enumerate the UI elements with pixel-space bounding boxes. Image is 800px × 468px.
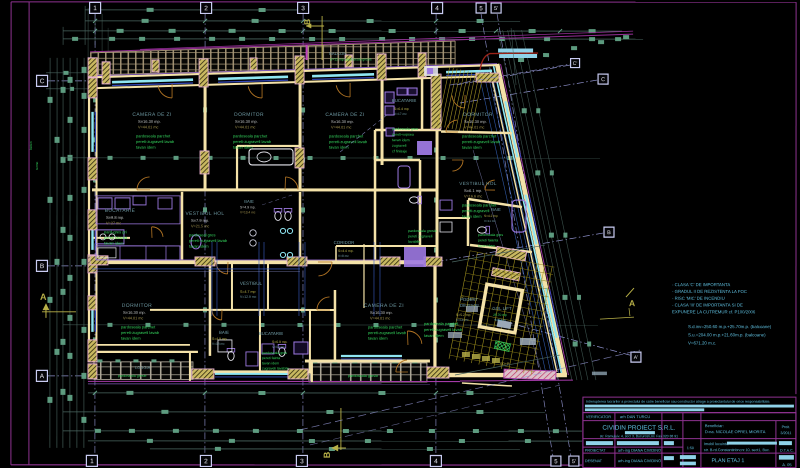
svg-text:pardoseala gresie: pardoseala gresie [348, 374, 378, 378]
svg-text:V=44.01 mc: V=44.01 mc [235, 125, 255, 129]
svg-text:lavabile: lavabile [408, 240, 420, 244]
svg-text:S=16.30 mp.: S=16.30 mp. [138, 119, 161, 124]
svg-text:pereti-zugraveli lavab: pereti-zugraveli lavab [424, 327, 463, 332]
svg-text:VESTIBUL: VESTIBUL [240, 281, 263, 286]
svg-text:DORMITOR: DORMITOR [234, 112, 264, 118]
svg-text:pereti-zugraveli lavab: pereti-zugraveli lavab [233, 139, 272, 144]
svg-text:V=44.01 mc: V=44.01 mc [123, 316, 143, 320]
svg-text:pardoseala gres: pardoseala gres [262, 351, 287, 355]
svg-text:arh-ing DIANA CIVIDINO: arh-ing DIANA CIVIDINO [618, 448, 661, 453]
svg-text:pardoseala parchet: pardoseala parchet [136, 133, 171, 138]
svg-text:S=6.2 m: S=6.2 m [494, 318, 506, 322]
svg-text:pereti-zugraveli lavab: pereti-zugraveli lavab [329, 139, 368, 144]
svg-text:tavan idem: tavan idem [368, 336, 388, 341]
svg-text:S=16.30 mp.: S=16.30 mp. [235, 119, 258, 124]
svg-text:3: 3 [301, 5, 305, 12]
svg-text:V=19 mc: V=19 mc [272, 345, 285, 349]
svg-text:tavan idem: tavan idem [462, 145, 482, 150]
svg-text:tavan idem: tavan idem [189, 244, 209, 249]
svg-text:pereti faianta: pereti faianta [104, 235, 128, 240]
svg-text:pardoseala parchet: pardoseala parchet [233, 133, 268, 138]
svg-text:V=44.01 mc: V=44.01 mc [138, 125, 158, 129]
svg-text:V=12.9 mc: V=12.9 mc [240, 295, 257, 299]
svg-text:S=16.30 mp.: S=16.30 mp. [123, 310, 146, 315]
svg-text:arh DAN TURCU: arh DAN TURCU [620, 414, 650, 419]
svg-text:str. B-rd.Constantinbrv,nr.10,: str. B-rd.Constantinbrv,nr.10, sect1, Bu… [704, 448, 770, 452]
svg-text:CORIDOR: CORIDOR [334, 240, 355, 245]
svg-text:cf finisaje: cf finisaje [392, 149, 407, 153]
svg-text:pardoseala parchet: pardoseala parchet [462, 134, 497, 139]
svg-text:BUCATARIE: BUCATARIE [105, 208, 135, 214]
svg-text:S=9.8 mp.: S=9.8 mp. [106, 215, 124, 220]
svg-text:V=44.01 mc: V=44.01 mc [370, 316, 390, 320]
svg-text:DORMITOR: DORMITOR [463, 112, 493, 118]
svg-text:S=4.7 mp: S=4.7 mp [240, 290, 255, 294]
svg-text:pardoseala parchet: pardoseala parchet [329, 133, 364, 138]
svg-text:C: C [601, 77, 605, 83]
svg-text:pereti fainta: pereti fainta [262, 356, 280, 360]
svg-text:S=6.4 mp: S=6.4 mp [394, 107, 409, 111]
svg-text:V=16.6 mc: V=16.6 mc [464, 195, 482, 199]
svg-text:EXPUNERE LA CUTREMUR cf. P100: EXPUNERE LA CUTREMUR cf. P100/2006 [672, 309, 756, 314]
svg-text:PLAN ETAJ 1: PLAN ETAJ 1 [711, 458, 744, 464]
svg-text:pardoseala parchet: pardoseala parchet [121, 324, 156, 329]
svg-text:pereti faianta: pereti faianta [478, 238, 498, 242]
svg-text:zugraveli: zugraveli [392, 144, 407, 148]
svg-text:S=4.9 mp: S=4.9 mp [212, 337, 227, 341]
svg-text:V=21.5 mc: V=21.5 mc [191, 224, 209, 228]
svg-text:1:50: 1:50 [687, 446, 694, 450]
svg-text:BAIE: BAIE [244, 199, 254, 204]
svg-text:PODEST: PODEST [460, 297, 478, 302]
svg-text:beton: beton [29, 141, 33, 150]
svg-text:BAIE: BAIE [491, 207, 501, 212]
svg-text:tavan idem: tavan idem [392, 138, 410, 142]
svg-text:2: 2 [204, 5, 208, 12]
svg-text:arh-ing DIANA CIVIDINO: arh-ing DIANA CIVIDINO [618, 458, 661, 463]
svg-text:pardoseala gres: pardoseala gres [392, 127, 418, 131]
svg-text:1: 1 [93, 5, 97, 12]
svg-text:CIVIDIN PROIECT S.R.L.: CIVIDIN PROIECT S.R.L. [602, 425, 675, 432]
svg-text:25.70 mp: 25.70 mp [493, 313, 507, 317]
svg-text:B: B [322, 451, 332, 458]
svg-text:S=4.4 mp.: S=4.4 mp. [338, 249, 354, 253]
svg-text:BAIE: BAIE [219, 330, 229, 335]
svg-text:3/2011: 3/2011 [780, 431, 791, 435]
svg-text:pereti-zugraveli lavab: pereti-zugraveli lavab [189, 238, 228, 243]
svg-text:BUCATARIE: BUCATARIE [259, 331, 284, 336]
svg-text:B: B [607, 230, 611, 236]
svg-text:tavan idem: tavan idem [136, 145, 156, 150]
svg-text:V=27 mc: V=27 mc [106, 221, 121, 225]
svg-text:S=12 mp pardoseala gresie: S=12 mp pardoseala gresie [330, 57, 372, 61]
svg-text:S=16.30 mp.: S=16.30 mp. [331, 119, 354, 124]
svg-text:V=671.20 m.c.: V=671.20 m.c. [688, 341, 716, 346]
svg-text:V=17 mc: V=17 mc [394, 112, 407, 116]
svg-text:CAMERA DE ZI: CAMERA DE ZI [364, 303, 404, 309]
svg-text:3: 3 [300, 458, 304, 465]
svg-text:Imobil locuinte:: Imobil locuinte: [704, 442, 729, 446]
svg-text:pereti-vopsea: pereti-vopsea [392, 133, 414, 137]
svg-text:- CLASA 'C' DE IMPORTANTA: - CLASA 'C' DE IMPORTANTA [672, 282, 730, 287]
svg-text:D-na. NICOLAE OPREL MIORITA: D-na. NICOLAE OPREL MIORITA [705, 429, 766, 434]
svg-text:DE NIVEL: DE NIVEL [460, 303, 481, 308]
svg-text:CAMERA DE ZI: CAMERA DE ZI [132, 112, 171, 118]
svg-text:BALCON: BALCON [329, 51, 346, 56]
svg-text:S=5.2 mp: S=5.2 mp [456, 313, 471, 317]
svg-text:S=16.30 mp.: S=16.30 mp. [370, 310, 393, 315]
svg-text:DESENAT: DESENAT [585, 459, 603, 463]
svg-text:V=44.01 mc: V=44.01 mc [464, 126, 484, 130]
svg-text:S=6.1 mp.: S=6.1 mp. [464, 188, 482, 193]
svg-text:V=8 mc: V=8 mc [338, 254, 349, 258]
svg-text:S=4.9 mp.: S=4.9 mp. [240, 205, 256, 209]
svg-text:- RISC 'MIC' DE INCENDIU: - RISC 'MIC' DE INCENDIU [672, 296, 725, 301]
svg-text:pereti-zugraveli lavab: pereti-zugraveli lavab [462, 139, 501, 144]
svg-text:tavan idem: tavan idem [104, 241, 124, 246]
svg-text:A': A' [634, 355, 638, 361]
svg-text:zugraveli lavabile: zugraveli lavabile [262, 367, 289, 371]
svg-text:pardoseala parchet: pardoseala parchet [368, 324, 403, 329]
svg-text:V=13 mc: V=13 mc [212, 342, 225, 346]
svg-text:pardoseala gresie: pardoseala gresie [408, 229, 437, 233]
svg-text:tavan idem: tavan idem [262, 361, 279, 365]
svg-text:CAMERA DE ZI: CAMERA DE ZI [325, 112, 364, 118]
svg-text:DORMITOR: DORMITOR [122, 303, 152, 309]
svg-text:tavan idem: tavan idem [121, 336, 141, 341]
svg-text:str. Ramuluiv. 4, sect 3, Bucu: str. Ramuluiv. 4, sect 3, Bucuresti,tel.… [600, 434, 678, 438]
svg-text:VESTIBUL HOL: VESTIBUL HOL [185, 211, 224, 217]
svg-text:V=13.4 mc: V=13.4 mc [240, 210, 256, 214]
svg-text:pereti-zugraveli lavab: pereti-zugraveli lavab [368, 330, 407, 335]
svg-text:S=16.30 mp.: S=16.30 mp. [464, 119, 487, 124]
svg-text:2: 2 [204, 458, 208, 465]
svg-text:termo: termo [35, 161, 39, 169]
svg-text:5': 5' [572, 459, 576, 465]
svg-text:VERIFICATOR: VERIFICATOR [586, 415, 611, 419]
svg-text:pard-gres gri: pard-gres gri [104, 229, 127, 234]
svg-text:A: A [629, 298, 635, 308]
svg-text:Beneficiar:: Beneficiar: [705, 423, 724, 428]
svg-text:pardoseala gres: pardoseala gres [478, 233, 503, 237]
svg-text:LOGGIA: LOGGIA [135, 365, 151, 370]
svg-text:tavan idem: tavan idem [233, 145, 253, 150]
svg-text:V=44.01 mc: V=44.01 mc [331, 125, 351, 129]
svg-text:S.d.inv=250.60 m.p.+25.70m.p.: S.d.inv=250.60 m.p.+25.70m.p. (balcoane) [688, 324, 772, 329]
svg-text:B: B [40, 263, 44, 270]
svg-text:pereti zugraveli: pereti zugraveli [408, 234, 433, 238]
svg-text:BUCATARIE: BUCATARIE [392, 98, 417, 103]
svg-text:tavan idem: tavan idem [462, 214, 482, 219]
svg-text:1: 1 [90, 458, 94, 465]
svg-text:Proit.: Proit. [782, 425, 791, 429]
svg-text:tavan idem: tavan idem [424, 333, 444, 338]
svg-text:A: A [40, 373, 45, 380]
svg-text:SD+P: SD+P [500, 362, 510, 366]
svg-text:A. 05: A. 05 [782, 462, 792, 467]
svg-text:pardoseala parchet: pardoseala parchet [424, 321, 459, 326]
svg-text:5': 5' [494, 6, 498, 12]
svg-text:S=6.9 mp.: S=6.9 mp. [272, 340, 288, 344]
svg-text:V=11 mc: V=11 mc [484, 219, 496, 223]
svg-text:pereti-zugraveli lavab: pereti-zugraveli lavab [136, 139, 175, 144]
svg-text:S.u.=204.00 m.p.+21.60m.p. (ba: S.u.=204.00 m.p.+21.60m.p. (balcoane) [688, 332, 766, 337]
svg-text:pereti-zugraveli lavab: pereti-zugraveli lavab [121, 330, 160, 335]
svg-text:D.T.A.C.: D.T.A.C. [780, 449, 794, 453]
svg-text:S=4.2 mp: S=4.2 mp [484, 214, 498, 218]
svg-text:S=7.9 mp.: S=7.9 mp. [191, 218, 209, 223]
svg-text:pardoseal gres: pardoseal gres [189, 232, 215, 237]
svg-text:pereti-zugraveli: pereti-zugraveli [462, 208, 489, 213]
svg-text:- GRADUL II DE REZISTENTA LA F: - GRADUL II DE REZISTENTA LA FOC [672, 289, 747, 294]
svg-text:4: 4 [434, 458, 438, 465]
svg-text:tavan idem: tavan idem [478, 244, 495, 248]
svg-text:- CLASA 'III' DE IMPORTANTA SI: - CLASA 'III' DE IMPORTANTA SI DE [672, 303, 743, 308]
svg-text:4: 4 [435, 5, 439, 12]
svg-text:PROIECTAT: PROIECTAT [585, 449, 606, 453]
svg-text:C': C' [573, 61, 578, 67]
svg-text:C: C [40, 78, 45, 85]
svg-text:pardoseala gresie: pardoseala gresie [118, 374, 147, 378]
svg-text:Intrerupterea lucrarilor a pr: Intrerupterea lucrarilor a proiectului d… [586, 400, 770, 404]
svg-text:VESTIBUL HOL: VESTIBUL HOL [459, 181, 497, 186]
svg-text:A: A [40, 292, 47, 302]
svg-text:GOL LIFT: GOL LIFT [492, 306, 512, 311]
